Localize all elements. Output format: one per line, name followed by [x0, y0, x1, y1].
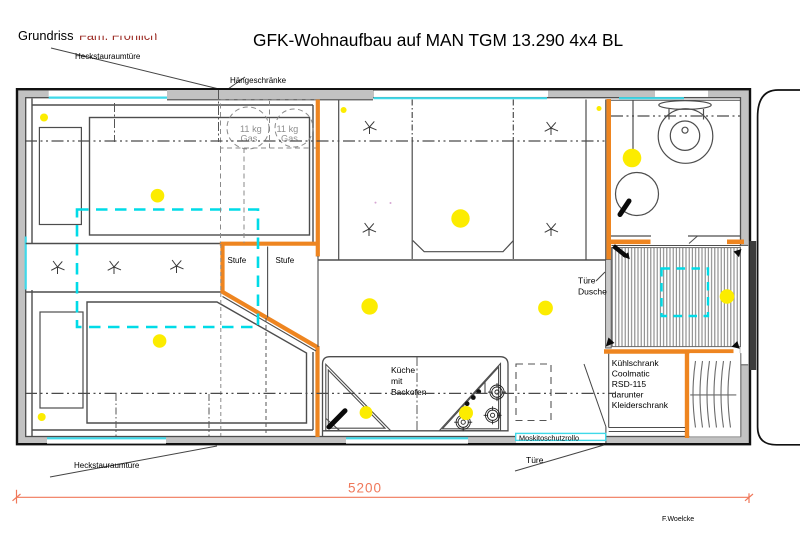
svg-text:11 kg: 11 kg — [277, 124, 299, 134]
svg-text:Gas: Gas — [241, 134, 258, 144]
svg-text:Coolmatic: Coolmatic — [612, 369, 651, 379]
svg-text:Stufe: Stufe — [276, 256, 295, 265]
svg-text:GFK-Wohnaufbau auf MAN TGM 13.: GFK-Wohnaufbau auf MAN TGM 13.290 4x4 BL — [253, 30, 624, 50]
svg-text:F.Woelcke: F.Woelcke — [662, 516, 694, 523]
svg-text:darunter: darunter — [612, 390, 644, 400]
svg-text:Dusche: Dusche — [578, 287, 607, 297]
svg-text:Gas: Gas — [281, 134, 298, 144]
svg-text:Moskitoschutzrollo: Moskitoschutzrollo — [519, 433, 579, 442]
svg-text:mit: mit — [391, 376, 403, 386]
svg-text:5200: 5200 — [348, 481, 382, 496]
svg-text:Heckstauraumtüre: Heckstauraumtüre — [75, 52, 141, 61]
svg-text:RSD-115: RSD-115 — [612, 379, 647, 389]
svg-text:Küche: Küche — [391, 365, 415, 375]
svg-text:Stufe: Stufe — [228, 256, 247, 265]
svg-text:Heckstauraumtüre: Heckstauraumtüre — [74, 461, 140, 470]
svg-text:Hängeschränke: Hängeschränke — [230, 76, 287, 85]
svg-text:Kleiderschrank: Kleiderschrank — [612, 400, 669, 410]
svg-text:Kühlschrank: Kühlschrank — [612, 358, 660, 368]
svg-text:Backofen: Backofen — [391, 387, 427, 397]
svg-text:Grundriss: Grundriss — [18, 28, 73, 43]
svg-text:Türe: Türe — [578, 276, 596, 286]
svg-text:11 kg: 11 kg — [240, 124, 262, 134]
svg-text:Türe: Türe — [526, 455, 544, 465]
